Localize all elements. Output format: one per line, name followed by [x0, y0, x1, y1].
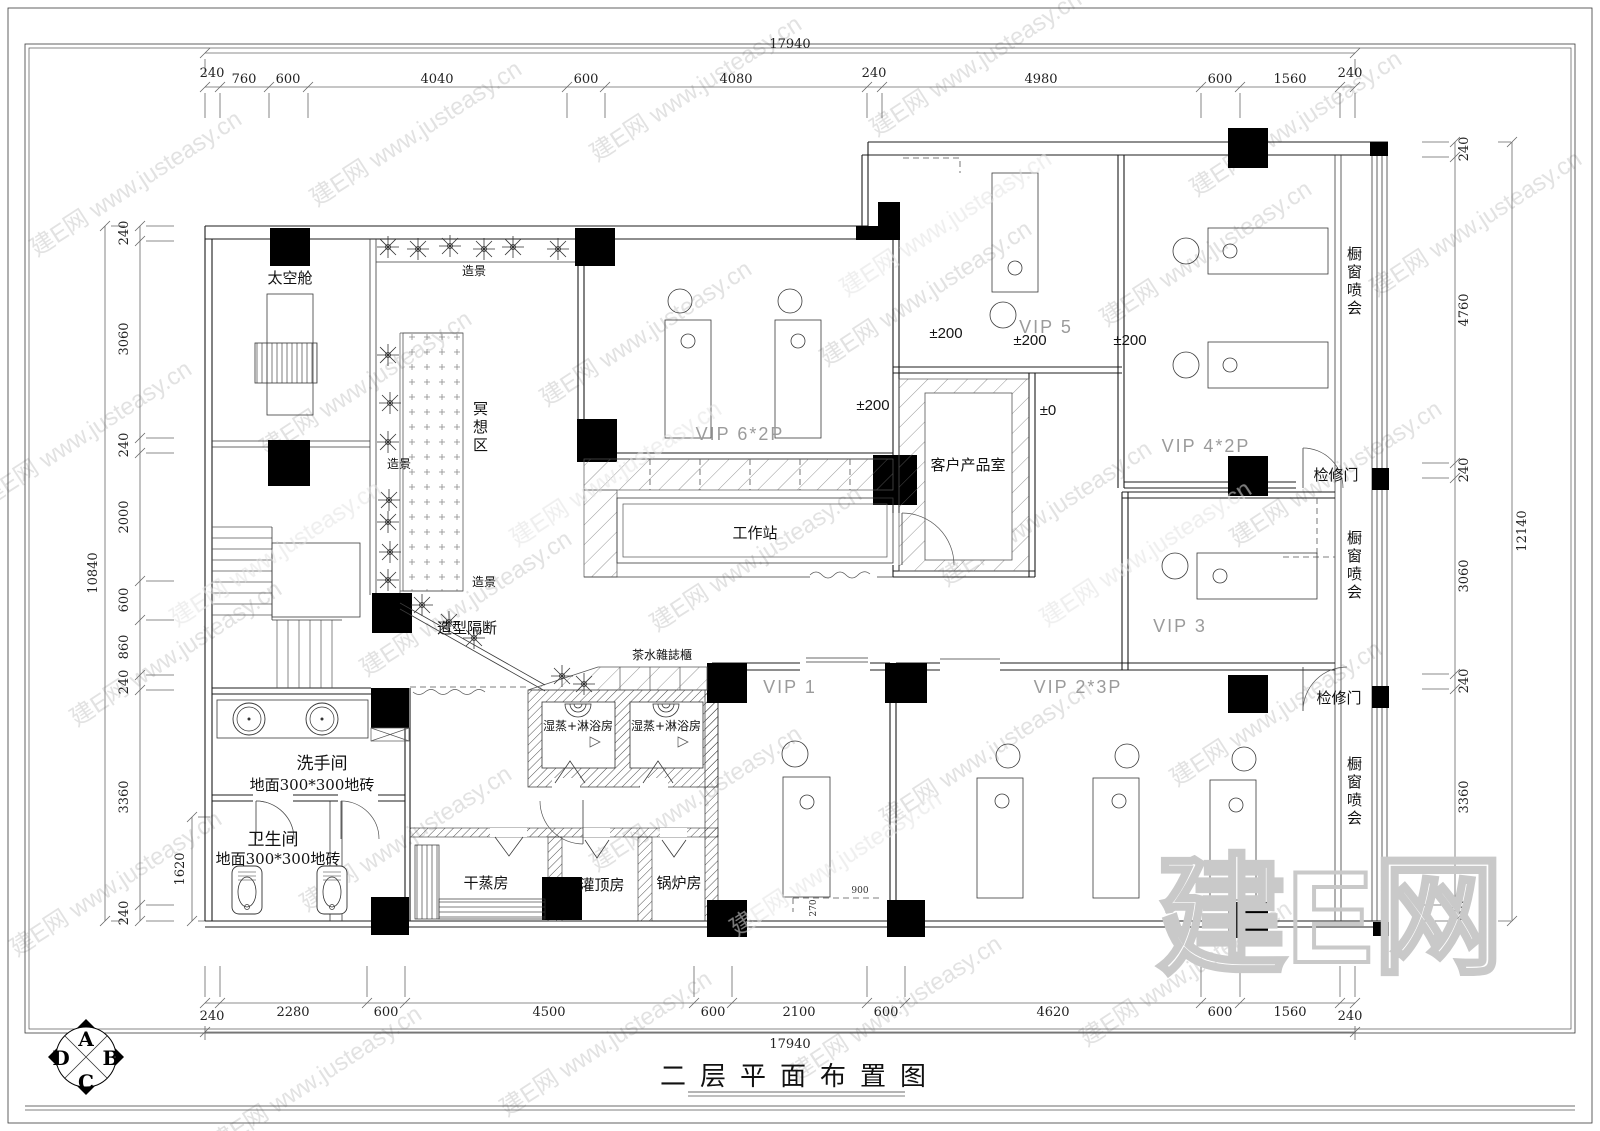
dim-right-total: 12140 — [1515, 510, 1530, 551]
label-scenery-bottom: 造景 — [472, 575, 496, 589]
dim-900: 900 — [851, 886, 868, 896]
svg-text:240: 240 — [1338, 1009, 1363, 1024]
label-vip3: VIP 3 — [1153, 616, 1207, 636]
compass-d: D — [52, 1046, 69, 1070]
compass-c: C — [78, 1070, 94, 1094]
svg-text:240: 240 — [200, 1009, 225, 1024]
svg-text:600: 600 — [701, 1005, 726, 1020]
label-window-display-3: 橱窗喷会 — [1345, 756, 1363, 828]
svg-text:4080: 4080 — [719, 72, 752, 87]
label-vip1: VIP 1 — [763, 677, 817, 697]
label-toilet-floor: 地面300*300地砖 — [216, 850, 341, 868]
compass-a: A — [77, 1027, 94, 1051]
label-washroom: 洗手间 — [297, 754, 348, 774]
label-boiler: 锅炉房 — [656, 874, 701, 892]
label-space-capsule: 太空舱 — [267, 269, 312, 287]
label-dry-steam: 干蒸房 — [463, 874, 508, 892]
svg-text:4500: 4500 — [532, 1005, 565, 1020]
label-toilet: 卫生间 — [248, 830, 299, 850]
label-access-door-2: 检修门 — [1316, 689, 1361, 707]
svg-text:4760: 4760 — [1457, 293, 1472, 326]
product-room-shelving — [899, 379, 1029, 571]
svg-text:240: 240 — [1338, 66, 1363, 81]
level-200-d: ±200 — [856, 397, 889, 414]
level-200-b: ±200 — [1013, 332, 1046, 349]
label-steam-shower-2: 湿蒸+淋浴房 — [631, 718, 701, 733]
svg-text:240: 240 — [1457, 669, 1472, 694]
svg-text:240: 240 — [1457, 458, 1472, 483]
label-guanding: 灌顶房 — [579, 876, 624, 894]
svg-text:600: 600 — [1208, 72, 1233, 87]
label-steam-shower-1: 湿蒸+淋浴房 — [543, 718, 613, 733]
svg-text:2280: 2280 — [276, 1005, 309, 1020]
dim-top-total: 17940 — [769, 37, 810, 52]
svg-text:240: 240 — [117, 221, 132, 246]
drawing-title-block: 二层平面布置图 — [660, 1062, 940, 1096]
cad-sheet: 建E网 www.justeasy.cn 建E网 www.justeasy.cn … — [0, 0, 1600, 1131]
svg-text:240: 240 — [200, 66, 225, 81]
label-access-door-1: 检修门 — [1313, 466, 1358, 484]
label-tea-cabinet: 茶水雜誌櫃 — [632, 647, 692, 662]
svg-text:860: 860 — [117, 635, 132, 660]
level-200-a: ±200 — [929, 325, 962, 342]
svg-text:240: 240 — [1457, 137, 1472, 162]
floor-plan-drawing: 建E网 www.justeasy.cn 建E网 www.justeasy.cn … — [0, 0, 1600, 1131]
svg-text:600: 600 — [374, 1005, 399, 1020]
label-meditation: 冥想区 — [471, 401, 489, 455]
svg-text:240: 240 — [117, 670, 132, 695]
svg-text:240: 240 — [117, 433, 132, 458]
svg-text:4620: 4620 — [1036, 1005, 1069, 1020]
watermark-big: 建E网 — [1157, 844, 1504, 990]
svg-text:2000: 2000 — [117, 500, 132, 533]
label-vip2: VIP 2*3P — [1034, 677, 1123, 697]
svg-text:2100: 2100 — [782, 1005, 815, 1020]
svg-text:600: 600 — [874, 1005, 899, 1020]
svg-text:600: 600 — [276, 72, 301, 87]
dim-bottom-total: 17940 — [769, 1037, 810, 1052]
svg-text:3360: 3360 — [117, 780, 132, 813]
svg-text:4980: 4980 — [1024, 72, 1057, 87]
label-window-display-2: 橱窗喷会 — [1345, 530, 1363, 602]
label-scenery-top: 造景 — [462, 264, 486, 278]
svg-text:240: 240 — [862, 66, 887, 81]
drawing-title: 二层平面布置图 — [660, 1062, 940, 1092]
dim-left-inner: 1620 — [173, 852, 188, 885]
svg-text:3060: 3060 — [117, 322, 132, 355]
label-washroom-floor: 地面300*300地砖 — [250, 776, 375, 794]
svg-text:3060: 3060 — [1457, 559, 1472, 592]
svg-text:760: 760 — [232, 72, 257, 87]
label-vip4: VIP 4*2P — [1162, 436, 1251, 456]
label-window-display-1: 橱窗喷会 — [1345, 246, 1363, 318]
svg-text:240: 240 — [117, 901, 132, 926]
svg-text:600: 600 — [574, 72, 599, 87]
label-scenery-mid: 造景 — [387, 457, 411, 471]
svg-text:1560: 1560 — [1273, 1005, 1306, 1020]
svg-text:4040: 4040 — [420, 72, 453, 87]
svg-text:600: 600 — [1208, 1005, 1233, 1020]
svg-text:1560: 1560 — [1273, 72, 1306, 87]
svg-text:600: 600 — [117, 588, 132, 613]
level-0: ±0 — [1040, 402, 1057, 419]
dim-left-total: 10840 — [86, 552, 101, 593]
svg-text:3360: 3360 — [1457, 780, 1472, 813]
label-product-room: 客户产品室 — [930, 456, 1005, 474]
level-200-c: ±200 — [1113, 332, 1146, 349]
dim-270: 270 — [809, 899, 819, 916]
label-partition: 造型隔断 — [437, 619, 497, 637]
compass-b: B — [103, 1046, 120, 1070]
label-workstation: 工作站 — [732, 524, 777, 542]
